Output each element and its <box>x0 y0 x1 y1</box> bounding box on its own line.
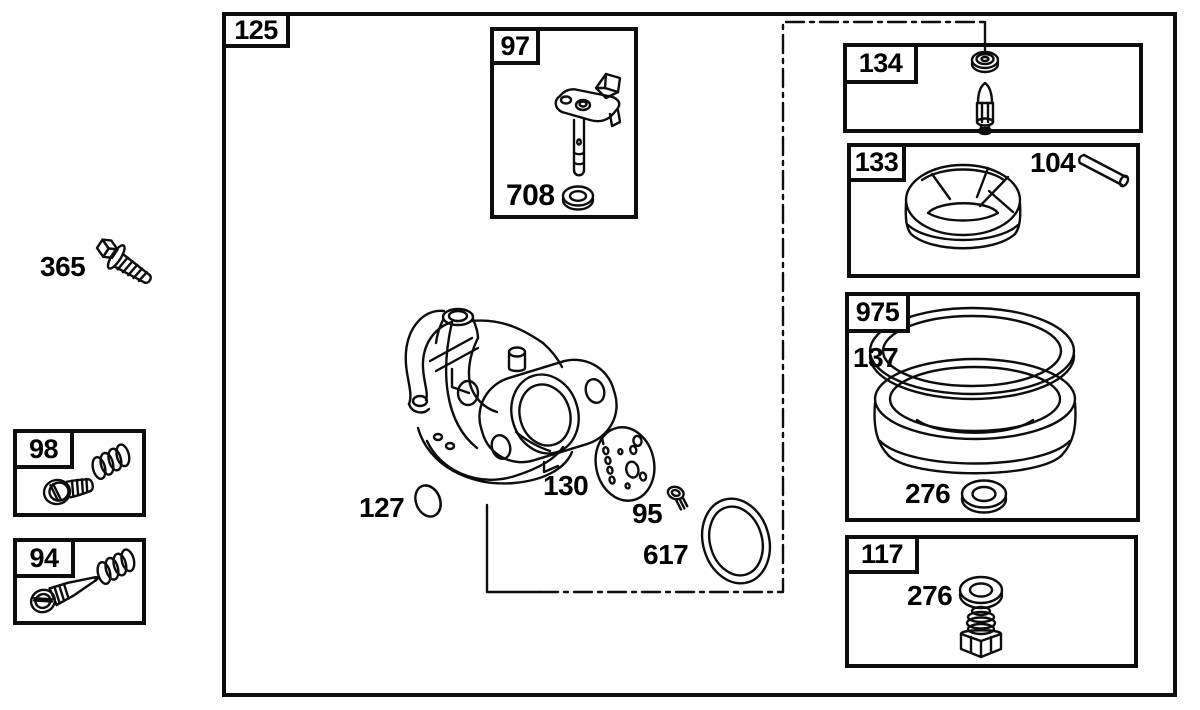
gasket-130-label: 130 <box>543 472 588 500</box>
washer-276-bowl-drawing <box>962 481 1006 513</box>
float-needle-drawing <box>977 83 993 134</box>
washer-276-drain-label: 276 <box>907 582 952 610</box>
screw-95-label: 95 <box>632 500 662 528</box>
drain-plug-number: 117 <box>861 541 903 568</box>
flange-bolt-drawing <box>91 234 158 290</box>
needle-seat-drawing <box>972 52 998 72</box>
throttle-shaft-label: 97 <box>490 27 540 65</box>
washer-708-drawing <box>563 187 593 210</box>
hinge-pin-label: 104 <box>1030 149 1075 177</box>
o-ring-drawing <box>692 491 779 592</box>
washer-276-bowl-label: 276 <box>905 480 950 508</box>
float-label: 133 <box>847 143 906 182</box>
washer-708-label: 708 <box>506 181 555 211</box>
throttle-shaft-number: 97 <box>500 33 529 60</box>
float-number: 133 <box>855 149 899 176</box>
main-assembly-label: 125 <box>222 12 290 48</box>
mounting-bolt-label: 365 <box>40 253 85 281</box>
carburetor-body-drawing <box>406 309 627 483</box>
washer-276-drain-drawing <box>960 577 1002 608</box>
float-drawing <box>906 165 1021 248</box>
needle-valve-number: 94 <box>29 545 58 572</box>
diagram-line-art <box>0 0 1200 710</box>
o-ring-label: 617 <box>643 541 688 569</box>
idle-screw-number: 98 <box>29 436 58 463</box>
drain-plug-drawing <box>961 607 1001 657</box>
screw-95-drawing <box>664 485 692 511</box>
drain-plug-label: 117 <box>845 535 919 574</box>
idle-screw-drawing <box>42 473 95 507</box>
carburetor-parts-diagram: 125 97 134 133 975 117 98 94 708 104 137… <box>0 0 1200 710</box>
float-bowl-number: 975 <box>856 299 900 326</box>
float-bowl-label: 975 <box>845 292 910 333</box>
needle-valve-spring-drawing <box>91 546 141 588</box>
hinge-pin-drawing <box>1079 155 1129 187</box>
main-assembly-number: 125 <box>234 17 278 44</box>
needle-seat-number: 134 <box>859 50 903 77</box>
needle-valve-label: 94 <box>13 538 75 578</box>
needle-seat-label: 134 <box>843 43 918 84</box>
welch-plug-drawing <box>411 482 445 521</box>
gasket-130-drawing <box>589 422 661 506</box>
bowl-gasket-label: 137 <box>853 344 898 372</box>
idle-screw-label: 98 <box>13 429 74 469</box>
throttle-shaft-drawing <box>556 74 620 175</box>
welch-plug-label: 127 <box>359 494 404 522</box>
idle-screw-spring-drawing <box>86 441 136 483</box>
